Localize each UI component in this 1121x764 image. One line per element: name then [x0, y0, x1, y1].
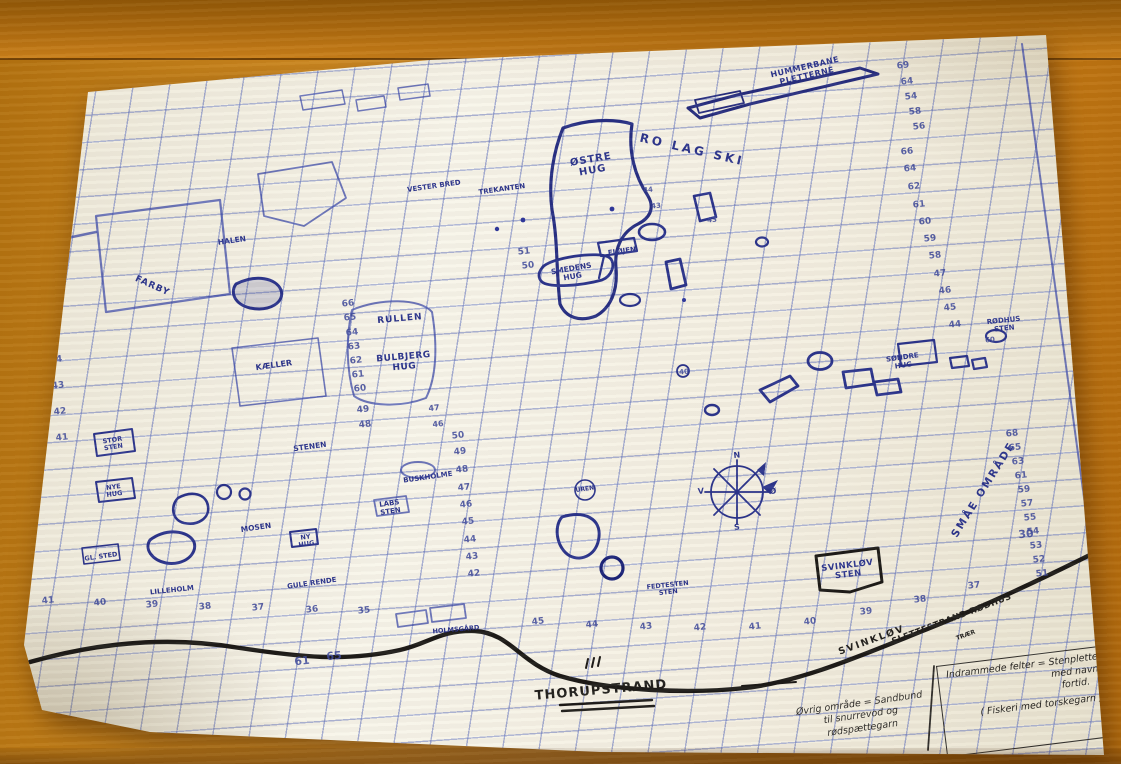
- table-bottom-shadow: [0, 748, 1121, 764]
- thorupstrand-underline: [560, 700, 654, 711]
- paper-crease: [16, 190, 28, 530]
- depth-sounding: 45: [47, 328, 61, 339]
- hummerbane-outline: [688, 68, 878, 118]
- map-label: HUS: [1089, 558, 1106, 568]
- ostre-hug-outline: [551, 121, 651, 319]
- hand-drawn-map-layer: [0, 0, 1121, 764]
- left-stone-patches: [82, 278, 318, 564]
- margin-line: [1022, 44, 1092, 556]
- compass-rose: [705, 460, 778, 524]
- svinklov-sten-box: [816, 548, 882, 592]
- depth-sounding: 47: [43, 276, 57, 287]
- map-paper-sheet: THORUPSTRANDSVINKLØVSLETTESTRAND RØDHUST…: [0, 0, 1121, 764]
- region-boundaries: [58, 84, 466, 627]
- center-stone-patches: [539, 193, 768, 579]
- margin-line-2: [1050, 40, 1116, 530]
- right-stone-patches: [760, 330, 1006, 402]
- beach-tick-marks: [586, 657, 600, 668]
- depth-sounding: 46: [45, 302, 59, 313]
- paper-wrap: THORUPSTRANDSVINKLØVSLETTESTRAND RØDHUST…: [0, 0, 1121, 764]
- photo-of-map-on-table: THORUPSTRANDSVINKLØVSLETTESTRAND RØDHUST…: [0, 0, 1121, 764]
